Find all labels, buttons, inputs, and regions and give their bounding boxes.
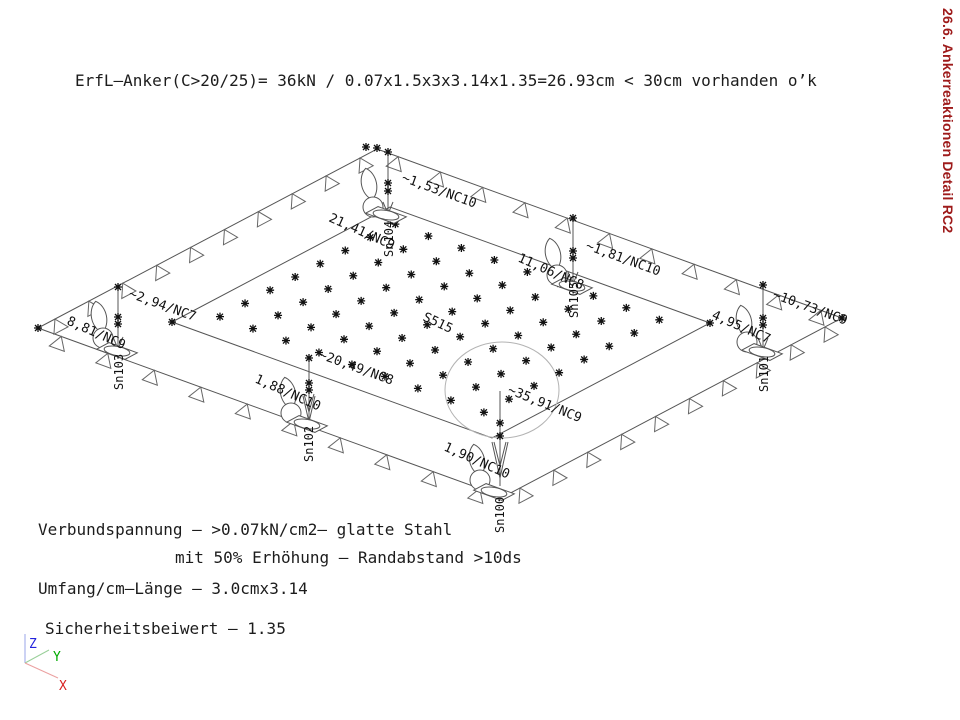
cad-plot-page: ErfL—Anker(C>20/25)= 36kN / 0.07x1.5x3x3… <box>0 0 960 720</box>
node-star <box>384 179 392 187</box>
node-star <box>489 345 497 353</box>
node-star <box>274 311 282 319</box>
node-star <box>448 308 456 316</box>
node-star <box>384 148 392 156</box>
node-star <box>465 269 473 277</box>
support-triangle <box>325 176 339 191</box>
node-star <box>569 247 577 255</box>
node-star <box>440 282 448 290</box>
anchor-reaction-min-label: ~35,91/NC9 <box>506 383 584 426</box>
node-star <box>759 281 767 289</box>
anchor-Sn105: ~1,81/NC1011,06/NC8Sn105 <box>515 214 662 318</box>
node-star <box>589 292 597 300</box>
node-star <box>655 316 663 324</box>
cad-drawing: Z Y X ~1,53/NC1021,41/NC9Sn104~1,81/NC10… <box>0 0 960 720</box>
support-triangle <box>724 280 739 295</box>
y-axis-label: Y <box>53 650 61 665</box>
node-star <box>340 335 348 343</box>
node-star <box>415 296 423 304</box>
support-triangle <box>49 336 64 351</box>
support-triangle <box>291 194 305 209</box>
anchor-reaction-min-label: ~10,73/NC9 <box>771 288 850 329</box>
x-axis-label: X <box>59 679 67 694</box>
node-star <box>506 306 514 314</box>
node-star <box>282 337 290 345</box>
note-umfang: Umfang/cm—Länge — 3.0cmx3.14 <box>38 579 308 598</box>
node-star <box>473 294 481 302</box>
node-star <box>382 284 390 292</box>
node-star <box>597 317 605 325</box>
anchor-reaction-min-label: ~20,49/NC8 <box>317 348 396 389</box>
node-star <box>365 322 373 330</box>
node-star <box>622 304 630 312</box>
node-star <box>362 143 370 151</box>
anchor-Sn103: ~2,94/NC78,81/NC9Sn103 <box>64 283 198 390</box>
support-triangle <box>587 452 601 467</box>
support-triangle <box>235 404 250 419</box>
anchor-id-label: Sn105 <box>567 282 581 318</box>
support-triangle <box>328 438 343 453</box>
node-star <box>399 245 407 253</box>
node-star <box>630 329 638 337</box>
node-star <box>316 260 324 268</box>
support-triangle <box>688 399 702 414</box>
node-star <box>457 244 465 252</box>
node-star <box>216 313 224 321</box>
node-star <box>547 343 555 351</box>
node-star <box>34 324 42 332</box>
node-star <box>447 396 455 404</box>
node-star <box>407 270 415 278</box>
node-star <box>522 357 530 365</box>
node-star <box>464 358 472 366</box>
support-triangle <box>722 381 736 396</box>
node-star <box>759 314 767 322</box>
anchor-reaction-min-label: ~1,53/NC10 <box>400 171 479 212</box>
node-star <box>114 313 122 321</box>
node-star <box>384 187 392 195</box>
node-star <box>569 254 577 262</box>
anchor-id-label: Sn100 <box>493 497 507 533</box>
support-triangle <box>621 434 635 449</box>
support-triangle <box>790 345 804 360</box>
node-star <box>569 214 577 222</box>
note-erhoehung: mit 50% Erhöhung — Randabstand >10ds <box>175 548 522 567</box>
node-star <box>555 369 563 377</box>
support-triangle <box>513 203 528 218</box>
node-star <box>472 383 480 391</box>
node-star <box>431 346 439 354</box>
anchor-reaction-min-label: ~1,81/NC10 <box>584 239 663 280</box>
support-triangle <box>553 470 567 485</box>
node-star <box>341 247 349 255</box>
note-sicherheitsbeiwert: Sicherheitsbeiwert — 1.35 <box>45 619 286 638</box>
node-star <box>357 297 365 305</box>
node-star <box>496 432 504 440</box>
support-triangle <box>655 416 669 431</box>
node-star <box>266 286 274 294</box>
node-star <box>432 257 440 265</box>
anchor-id-label: Sn101 <box>757 356 771 392</box>
node-star <box>424 232 432 240</box>
node-star <box>490 256 498 264</box>
node-star <box>168 318 176 326</box>
support-triangle <box>555 218 570 233</box>
node-star <box>414 384 422 392</box>
node-star <box>398 334 406 342</box>
node-star <box>406 359 414 367</box>
support-triangle <box>190 247 204 262</box>
node-star <box>114 320 122 328</box>
node-star <box>539 318 547 326</box>
node-star <box>373 347 381 355</box>
node-star <box>481 320 489 328</box>
support-triangle <box>257 212 271 227</box>
node-star <box>114 283 122 291</box>
node-star <box>497 370 505 378</box>
node-star <box>305 379 313 387</box>
anchor-Sn101: ~10,73/NC94,95/NC7Sn101 <box>709 281 849 392</box>
node-star <box>572 330 580 338</box>
node-star <box>480 408 488 416</box>
node-star <box>373 144 381 152</box>
node-star <box>307 323 315 331</box>
anchor-id-label: Sn103 <box>112 354 126 390</box>
node-star <box>580 355 588 363</box>
anchor-Sn100: ~35,91/NC91,90/NC10Sn100 <box>441 383 583 533</box>
support-triangle <box>824 327 838 342</box>
support-triangle <box>189 387 204 402</box>
x-axis-line <box>25 663 58 678</box>
node-star <box>530 382 538 390</box>
node-star <box>332 310 340 318</box>
node-star <box>456 333 464 341</box>
node-star <box>305 354 313 362</box>
anchor-id-label: Sn104 <box>382 221 396 257</box>
support-triangle <box>682 264 697 279</box>
anchor-Sn102: ~20,49/NC81,88/NC10Sn102 <box>252 348 395 462</box>
node-star <box>498 281 506 289</box>
anchor-reaction-min-label: ~2,94/NC7 <box>127 287 198 325</box>
support-triangle <box>519 488 533 503</box>
support-triangle <box>223 230 237 245</box>
node-star <box>249 325 257 333</box>
support-triangle <box>142 370 157 385</box>
node-star <box>241 299 249 307</box>
anchor-Sn104: ~1,53/NC1021,41/NC9Sn104 <box>326 148 478 257</box>
node-star <box>349 272 357 280</box>
support-triangle <box>421 472 436 487</box>
note-verbundspannung: Verbundspannung — >0.07kN/cm2— glatte St… <box>38 520 452 539</box>
node-star <box>299 298 307 306</box>
node-star <box>324 285 332 293</box>
node-star <box>390 309 398 317</box>
support-triangle <box>96 353 111 368</box>
support-triangle <box>375 455 390 470</box>
node-star <box>291 273 299 281</box>
node-star <box>374 259 382 267</box>
node-star <box>531 293 539 301</box>
node-star <box>439 371 447 379</box>
node-star <box>496 419 504 427</box>
anchor-id-label: Sn102 <box>302 426 316 462</box>
node-star <box>605 342 613 350</box>
support-triangle <box>156 265 170 280</box>
axes-triad: Z Y X <box>25 634 67 694</box>
z-axis-label: Z <box>29 637 37 652</box>
node-star <box>514 332 522 340</box>
